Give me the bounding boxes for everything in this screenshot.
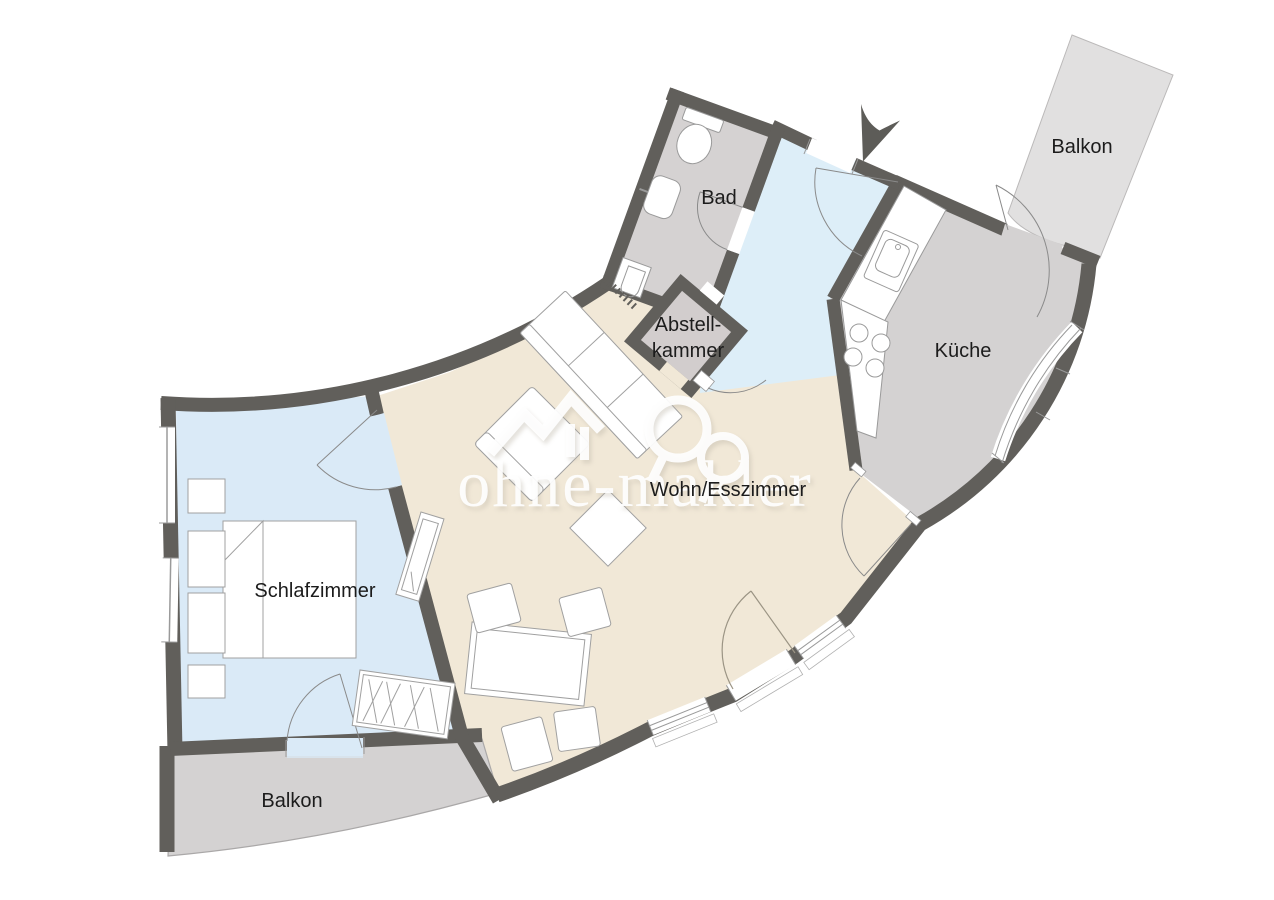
svg-text:Abstell-: Abstell- bbox=[655, 314, 722, 336]
svg-text:Balkon: Balkon bbox=[261, 790, 322, 812]
svg-text:Schlafzimmer: Schlafzimmer bbox=[254, 580, 375, 602]
svg-text:Bad: Bad bbox=[701, 187, 737, 209]
svg-text:Balkon: Balkon bbox=[1051, 136, 1112, 158]
svg-text:Küche: Küche bbox=[935, 340, 992, 362]
svg-text:kammer: kammer bbox=[652, 340, 725, 362]
svg-text:Wohn/Esszimmer: Wohn/Esszimmer bbox=[650, 479, 807, 501]
